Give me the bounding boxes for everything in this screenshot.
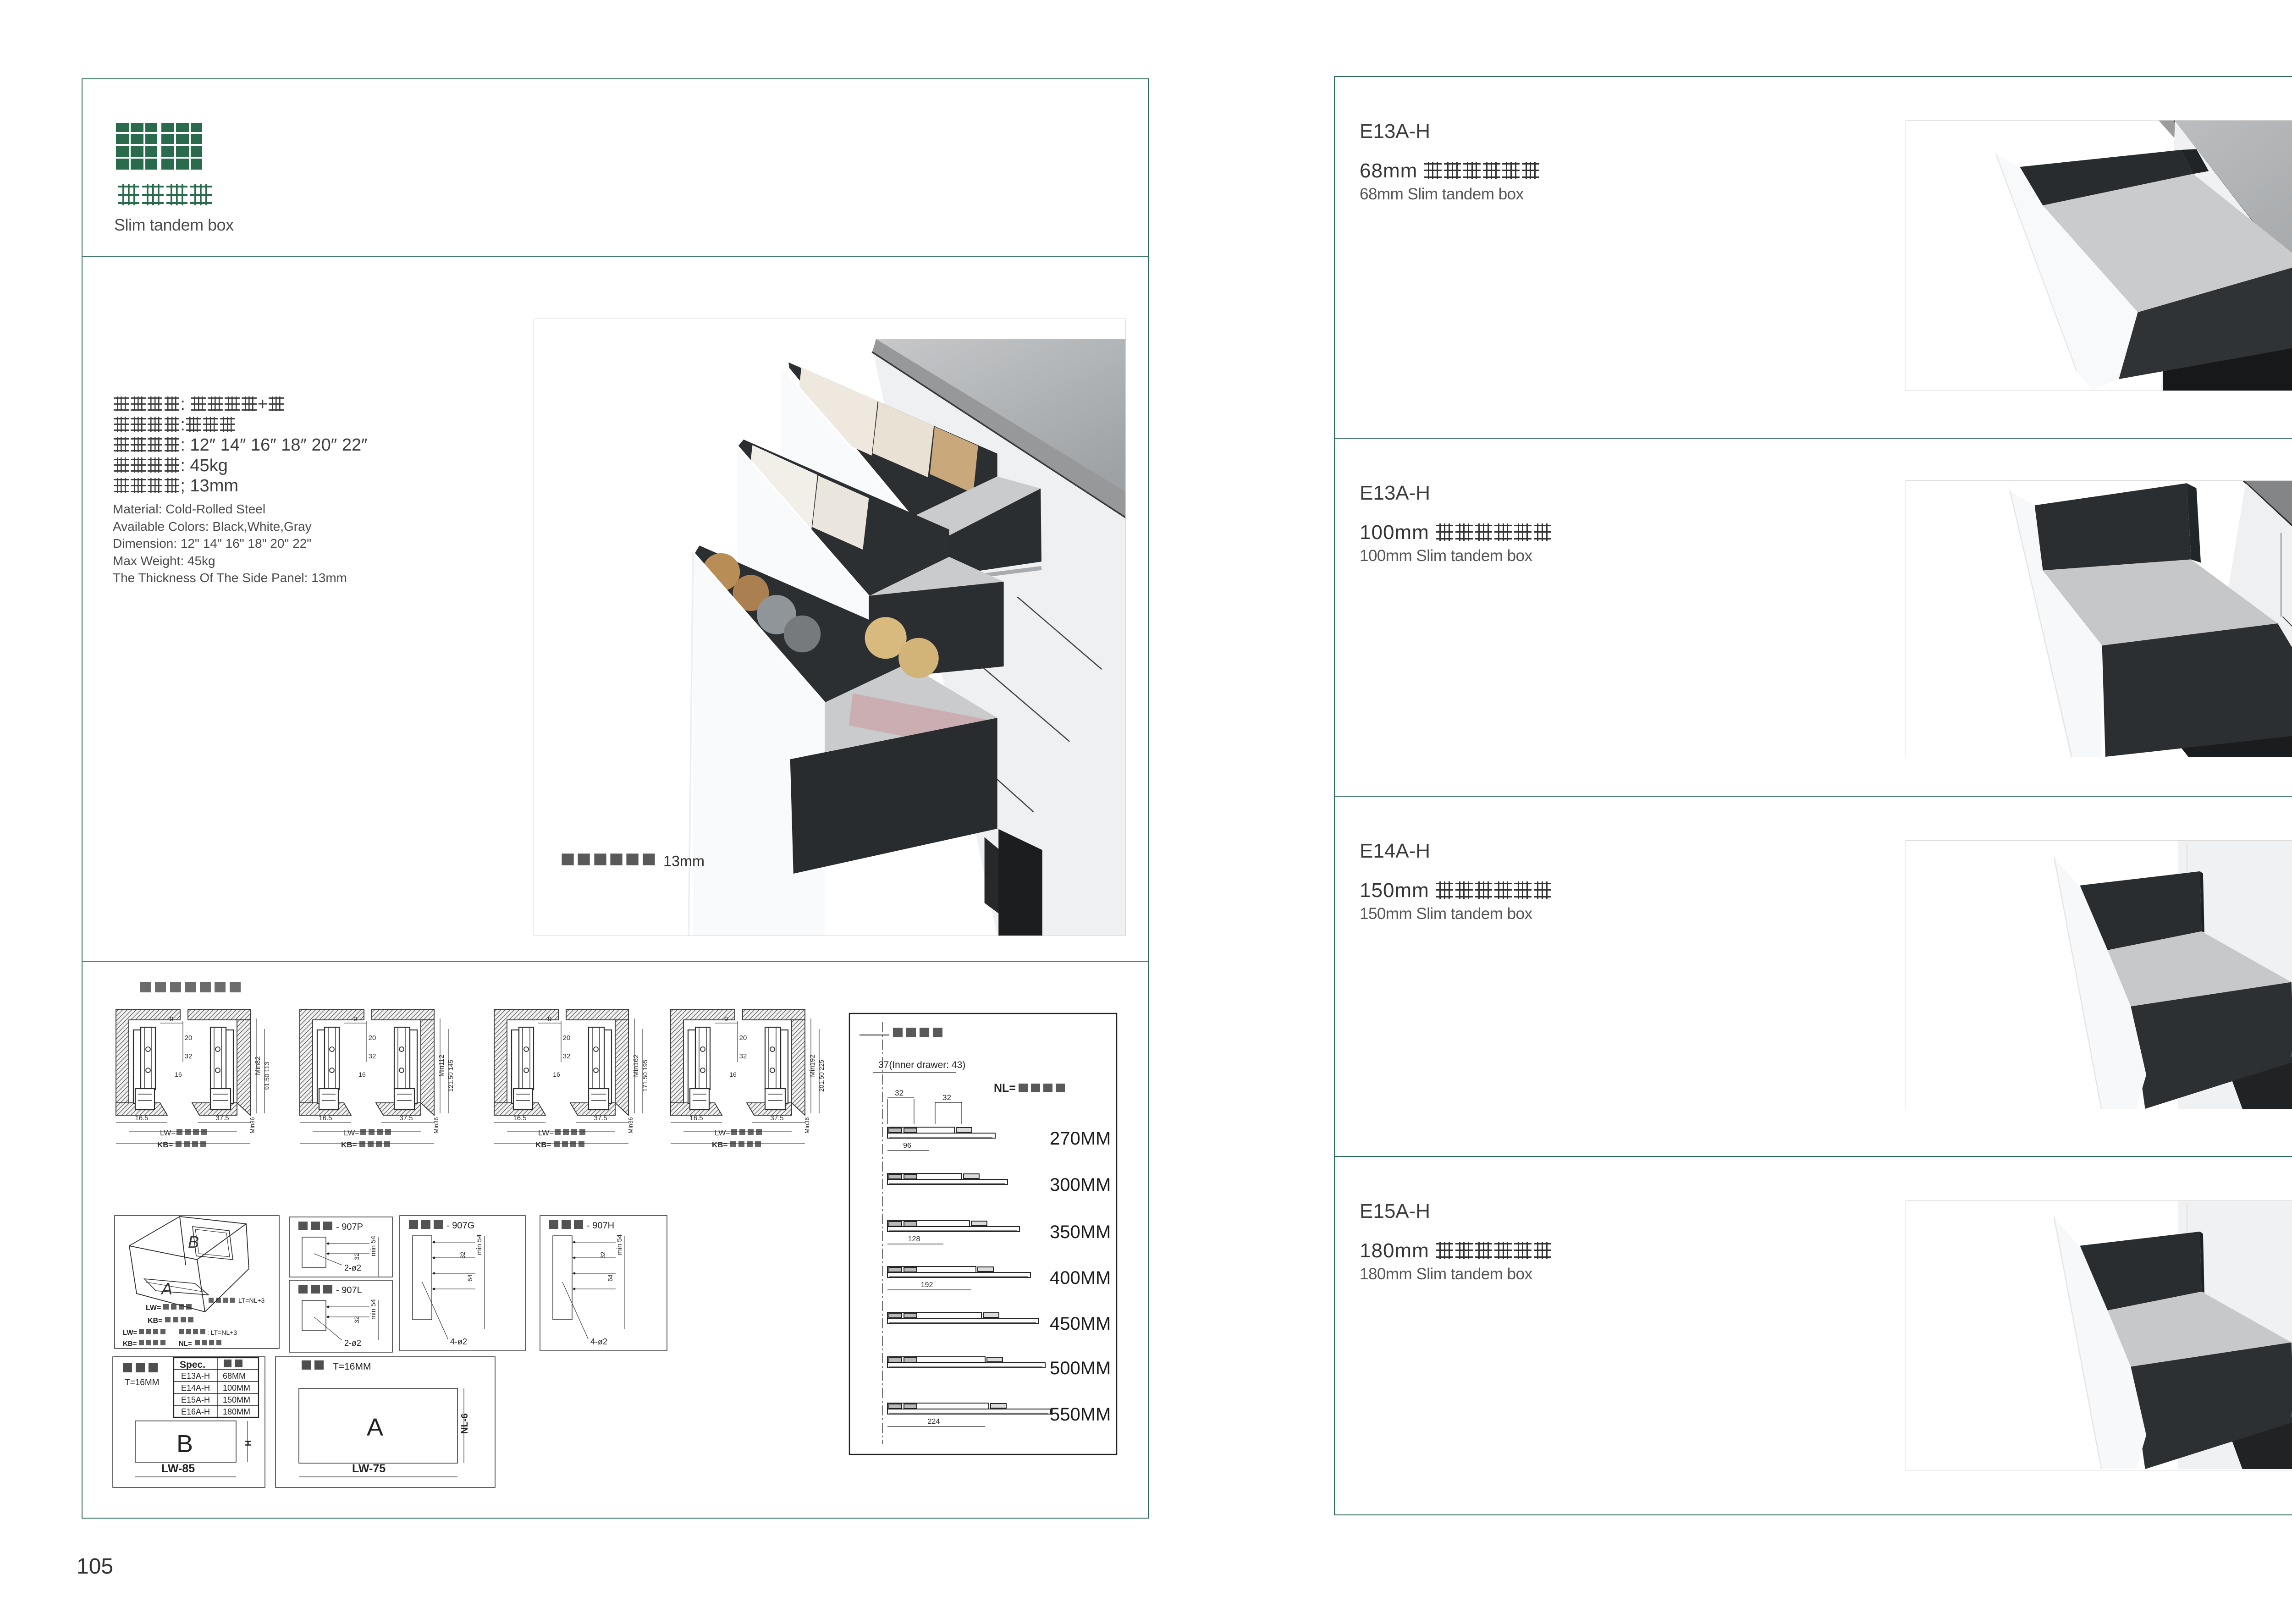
svg-text:192: 192 [921,1281,933,1289]
svg-text:E15A-H: E15A-H [181,1395,210,1404]
svg-text:H: H [244,1440,253,1446]
svg-text:224: 224 [928,1418,940,1426]
svg-text:min 54: min 54 [616,1234,623,1255]
svg-text:32: 32 [739,1052,747,1060]
svg-text:37.5: 37.5 [770,1114,783,1122]
svg-text:LW-85: LW-85 [161,1462,195,1475]
svg-text:Min36: Min36 [433,1117,440,1133]
svg-text:128: 128 [908,1235,920,1243]
svg-text:37.5: 37.5 [399,1114,413,1122]
svg-text:37(Inner drawer: 43): 37(Inner drawer: 43) [878,1060,965,1070]
svg-text:16: 16 [358,1071,366,1078]
svg-text:16: 16 [553,1071,560,1078]
svg-text:E14A-H: E14A-H [181,1383,210,1393]
svg-text:: LT=NL+3: : LT=NL+3 [207,1329,237,1336]
svg-text:A: A [367,1414,383,1441]
svg-text:LW=: LW= [344,1129,359,1137]
svg-text:16.5: 16.5 [513,1114,526,1122]
svg-text:NL=: NL= [994,1082,1016,1095]
svg-text:121.50 145: 121.50 145 [447,1060,454,1092]
svg-text:32: 32 [599,1251,606,1259]
svg-text:150MM: 150MM [223,1395,250,1404]
svg-text:20: 20 [185,1034,193,1042]
svg-text:32: 32 [369,1052,376,1060]
svg-text:32: 32 [563,1052,571,1060]
svg-text:Min36: Min36 [804,1117,810,1133]
svg-text:500MM: 500MM [1050,1358,1111,1378]
svg-text:LW=: LW= [123,1329,137,1337]
svg-text:270MM: 270MM [1050,1129,1111,1149]
svg-text:64: 64 [466,1274,474,1282]
svg-text:20: 20 [369,1034,376,1042]
svg-text:Min192: Min192 [809,1054,816,1077]
svg-text:171.50 195: 171.50 195 [641,1060,649,1092]
svg-text:96: 96 [903,1142,911,1150]
svg-text:min 54: min 54 [369,1236,377,1256]
svg-text:KB=: KB= [157,1140,173,1149]
svg-text:13mm: 13mm [663,853,705,869]
svg-text:LW-75: LW-75 [352,1462,386,1475]
svg-text:16.5: 16.5 [689,1114,703,1122]
svg-text:16: 16 [175,1071,182,1078]
svg-text:37.5: 37.5 [594,1114,607,1122]
svg-text:LW=: LW= [538,1129,554,1137]
svg-text:Min112: Min112 [438,1055,446,1077]
svg-text:min 54: min 54 [475,1234,483,1255]
svg-text:- 907P: - 907P [336,1222,363,1232]
svg-text:91.50 113: 91.50 113 [263,1062,270,1090]
svg-text:- 907L: - 907L [336,1285,362,1295]
svg-text:KB=: KB= [535,1140,551,1149]
svg-text:350MM: 350MM [1050,1222,1111,1242]
svg-text:A: A [160,1279,172,1298]
svg-text:180MM: 180MM [223,1407,250,1416]
svg-text:Min162: Min162 [632,1054,640,1077]
svg-text:2-ø2: 2-ø2 [344,1338,361,1348]
svg-text:32: 32 [895,1089,904,1097]
svg-text:B: B [176,1430,193,1458]
svg-text:16.5: 16.5 [319,1114,332,1122]
svg-text:64: 64 [606,1274,614,1282]
svg-text:LW=: LW= [146,1304,161,1312]
svg-text:4-ø2: 4-ø2 [590,1337,607,1346]
svg-text:LW=: LW= [715,1129,730,1137]
svg-text:min 54: min 54 [369,1299,377,1320]
svg-text:LT=NL+3: LT=NL+3 [238,1297,265,1304]
svg-text:Spec.: Spec. [180,1360,205,1370]
svg-text:300MM: 300MM [1050,1175,1111,1195]
svg-text:16.5: 16.5 [135,1114,148,1122]
svg-text:KB=: KB= [123,1340,137,1348]
svg-text:E16A-H: E16A-H [181,1407,210,1416]
svg-text:37.5: 37.5 [215,1114,229,1122]
svg-text:450MM: 450MM [1050,1314,1111,1334]
svg-text:B: B [188,1233,199,1251]
svg-text:KB=: KB= [712,1140,728,1149]
svg-text:- 907G: - 907G [446,1221,474,1231]
svg-text:Min36: Min36 [249,1117,256,1133]
svg-text:Min36: Min36 [627,1117,634,1133]
svg-text:NL-6: NL-6 [460,1414,470,1434]
svg-text:9: 9 [353,1015,357,1023]
svg-text:32: 32 [353,1316,360,1323]
svg-text:Min82: Min82 [254,1057,262,1075]
svg-text:68MM: 68MM [223,1371,246,1381]
svg-text:16: 16 [729,1071,737,1078]
svg-text:32: 32 [942,1093,951,1102]
svg-text:T=16MM: T=16MM [333,1361,371,1372]
svg-text:400MM: 400MM [1050,1268,1111,1288]
svg-text:NL=: NL= [179,1340,192,1348]
svg-text:20: 20 [563,1034,571,1042]
svg-text:9: 9 [724,1015,728,1023]
svg-text:4-ø2: 4-ø2 [450,1337,467,1346]
svg-text:E13A-H: E13A-H [181,1371,210,1381]
svg-text:32: 32 [185,1052,193,1060]
svg-text:9: 9 [170,1015,173,1023]
svg-text:T=16MM: T=16MM [125,1378,160,1387]
svg-text:9: 9 [548,1015,551,1023]
svg-text:2-ø2: 2-ø2 [344,1263,361,1272]
svg-text:201.50 225: 201.50 225 [818,1060,825,1092]
svg-text:LW=: LW= [160,1129,176,1137]
svg-text:20: 20 [739,1034,747,1042]
svg-text:100MM: 100MM [223,1383,250,1393]
svg-text:32: 32 [353,1253,360,1260]
svg-text:550MM: 550MM [1050,1404,1111,1425]
svg-text:KB=: KB= [148,1317,162,1325]
svg-text:- 907H: - 907H [587,1221,614,1231]
svg-text:KB=: KB= [341,1140,357,1149]
svg-text:32: 32 [459,1251,466,1259]
